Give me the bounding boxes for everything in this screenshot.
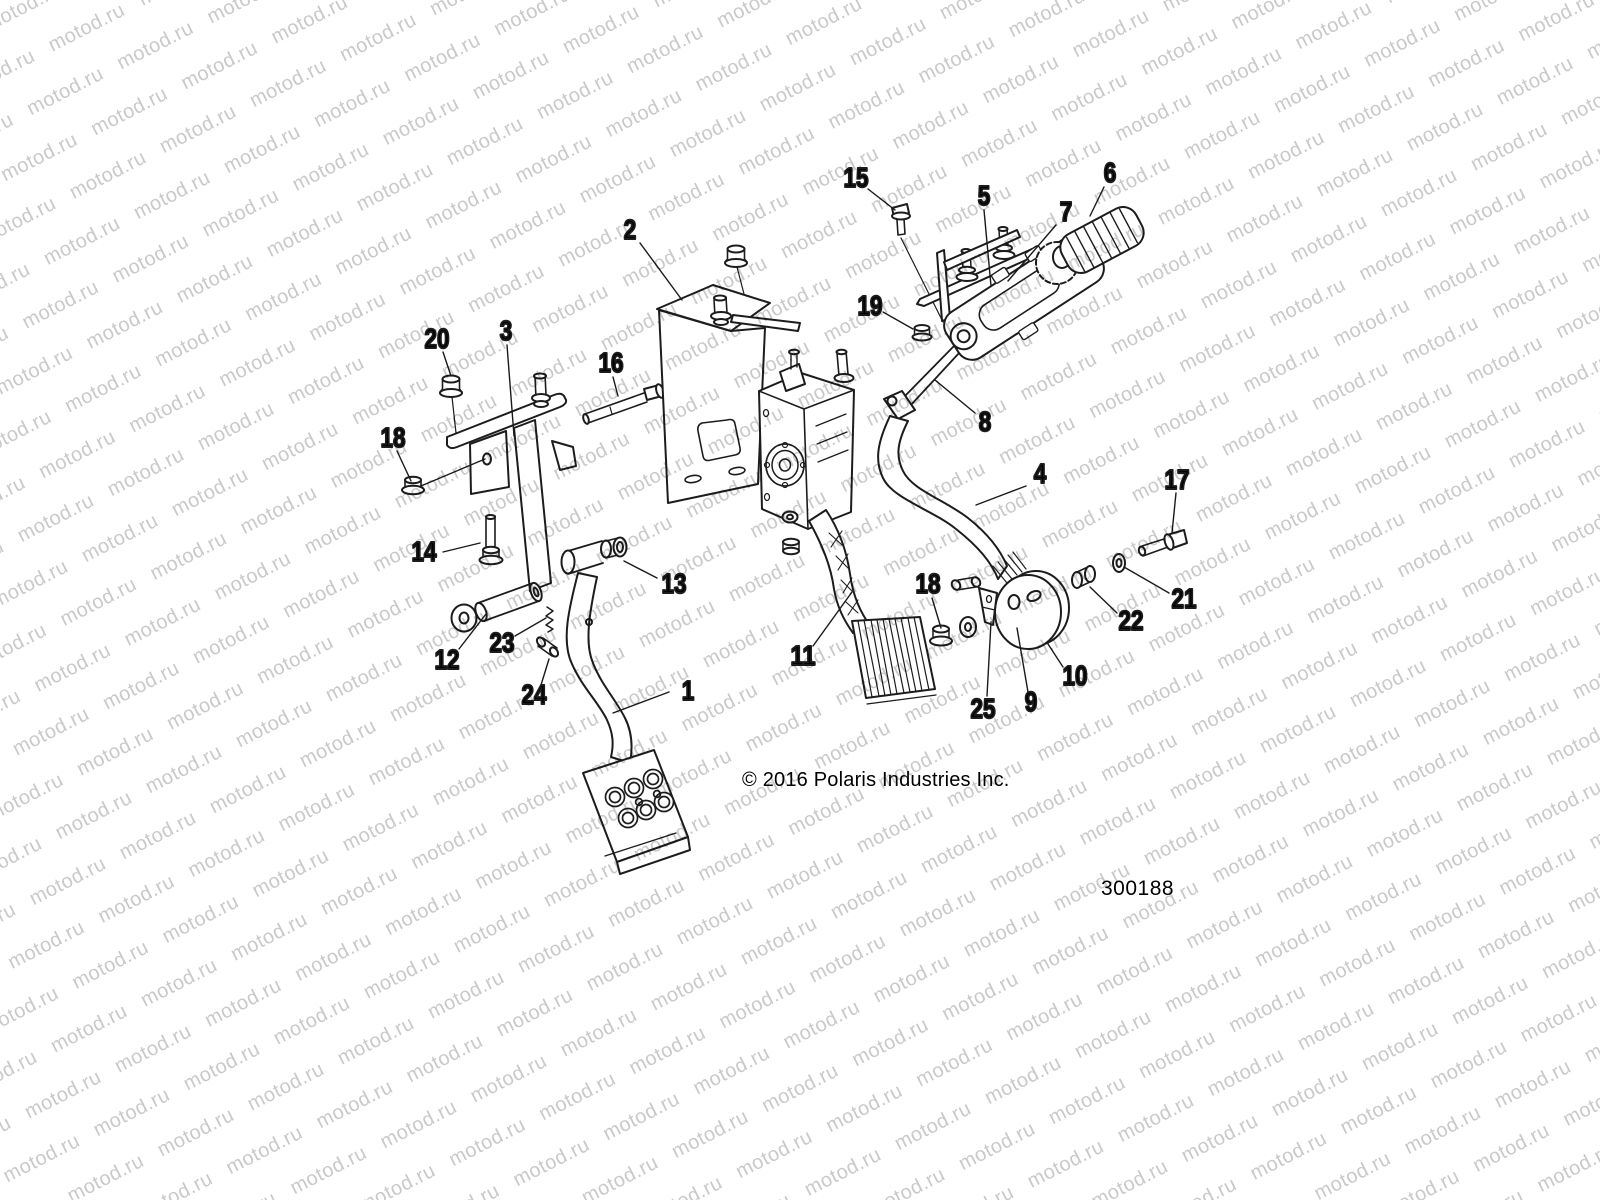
callout-13: 13 (662, 568, 687, 599)
retainer-clip (950, 576, 997, 625)
flange-nut (783, 539, 799, 554)
leader-line-13 (624, 561, 657, 578)
copyright-notice: © 2016 Polaris Industries Inc. (742, 769, 1010, 792)
brake-pedal-pad (583, 750, 690, 874)
callout-24: 24 (522, 679, 547, 710)
leader-line-14 (443, 543, 480, 552)
throttle-rod-link (884, 346, 960, 419)
callout-2: 2 (624, 214, 637, 245)
leader-line-1 (613, 692, 669, 713)
leader-line-20 (443, 352, 451, 376)
leader-line-23 (515, 618, 546, 636)
diagram-number: 300188 (1101, 877, 1174, 901)
pivot-tube-and-washer (452, 581, 544, 631)
callout-19: 19 (858, 290, 883, 321)
callout-11: 11 (791, 640, 816, 671)
callout-16: 16 (599, 347, 624, 378)
callout-18-2: 18 (916, 568, 941, 599)
callout-8: 8 (979, 406, 992, 437)
pivot-bushing (601, 538, 627, 559)
spacer-bushing (1072, 566, 1095, 588)
leader-line-18 (397, 451, 411, 481)
throttle-pedal-arm (809, 510, 871, 633)
leader-line-19 (883, 312, 913, 329)
hex-bolt (582, 383, 665, 424)
leader-line-2 (640, 243, 682, 300)
callout-14: 14 (412, 536, 437, 567)
washer (1113, 554, 1125, 572)
callout-22: 22 (1119, 605, 1144, 636)
callout-21: 21 (1172, 583, 1197, 614)
callout-18: 18 (381, 422, 406, 453)
callout-7: 7 (1060, 196, 1073, 227)
leader-line-17 (1172, 493, 1176, 533)
leader-line-8 (935, 380, 975, 413)
callout-1: 1 (682, 675, 695, 706)
callout-9: 9 (1025, 686, 1038, 717)
pedal-pivot-sleeve (562, 541, 604, 574)
throttle-pedal-pad (852, 617, 936, 704)
leader-line-22 (1090, 587, 1117, 613)
callout-15: 15 (844, 162, 869, 193)
washer (960, 617, 976, 637)
leader-line-21 (1124, 567, 1169, 593)
flange-nut (913, 325, 932, 341)
leader-line-4 (976, 486, 1026, 505)
parts-diagram-page: 1234567891011121314151617181819202122232… (0, 0, 1600, 1200)
leader-line-6 (1090, 187, 1104, 216)
callout-12: 12 (435, 644, 460, 675)
leader-line-10 (1048, 644, 1063, 667)
leader-line-16 (613, 377, 618, 396)
rubber-stop-cap (440, 376, 462, 434)
hex-bolt (480, 515, 503, 564)
clevis-pin (535, 636, 559, 658)
coil-spring (546, 607, 553, 632)
callout-17: 17 (1165, 464, 1190, 495)
callout-23: 23 (490, 627, 515, 658)
leader-line-15 (868, 189, 895, 210)
hex-bolt (835, 350, 854, 382)
callout-3: 3 (500, 315, 513, 346)
leader-line-18 (932, 598, 941, 628)
leader-line-25 (987, 622, 991, 696)
callout-25: 25 (971, 693, 996, 724)
accelerator-pedal-arm (878, 416, 1007, 579)
callout-10: 10 (1063, 660, 1088, 691)
callout-20: 20 (425, 323, 450, 354)
callout-4: 4 (1034, 458, 1047, 489)
exploded-parts-diagram: 1234567891011121314151617181819202122232… (0, 0, 1600, 1200)
callout-5: 5 (978, 180, 991, 211)
hex-bolt (1138, 530, 1187, 556)
washer (783, 512, 798, 523)
callout-6: 6 (1104, 157, 1117, 188)
brake-pedal-arm (567, 573, 632, 763)
